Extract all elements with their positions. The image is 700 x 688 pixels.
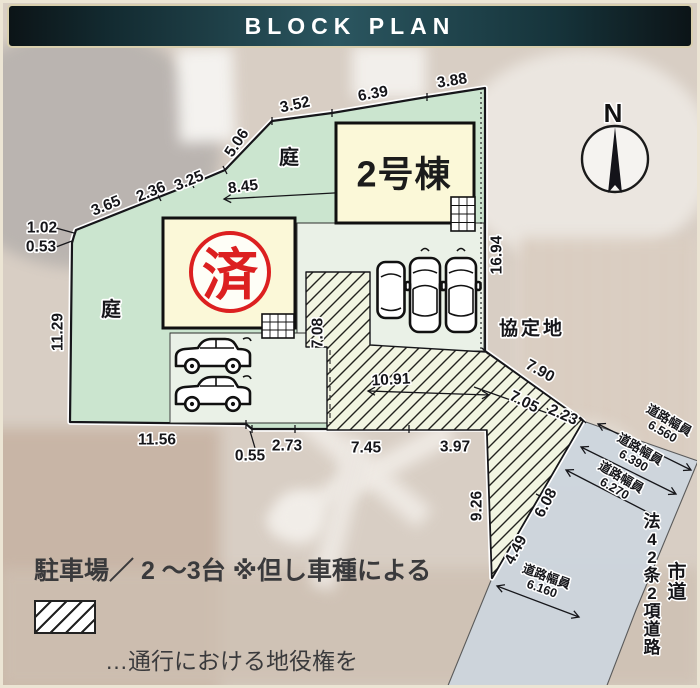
block-plan-flyer: BLOCK PLAN — [0, 0, 700, 688]
garden-label: 庭 — [101, 297, 121, 321]
easement-legend: …通行における地役権を 設定していただきます。 (別途設定登記費用がかかります) — [34, 596, 464, 688]
dimension-label: 2.73 — [272, 438, 303, 455]
compass-north-label: N — [604, 98, 623, 128]
dimension-label: 7.08 — [310, 318, 327, 349]
legend-line-1: …通行における地役権を — [105, 648, 464, 674]
page-title: BLOCK PLAN — [245, 13, 456, 40]
dimension-label: 3.52 — [278, 94, 311, 117]
agreement-land-label: 協定地 — [499, 317, 565, 340]
dimension-label: 7.45 — [351, 440, 382, 457]
notes-block: 駐車場／ 2 ～3台 ※但し車種による …通行における地役権を 設定していただき… — [34, 551, 464, 688]
dimension-label: 10.91 — [371, 370, 411, 389]
garden-label: 庭 — [279, 145, 299, 169]
dimension-label: 3.97 — [440, 439, 470, 456]
building-2-porch — [451, 197, 475, 231]
dimension-label: 0.55 — [235, 448, 266, 465]
building-1-porch — [262, 314, 294, 338]
parking-note: 駐車場／ 2 ～3台 ※但し車種による — [34, 551, 464, 587]
compass: N — [582, 98, 648, 193]
dimension-label: 3.88 — [436, 70, 469, 92]
dimension-label: 1.02 — [27, 220, 57, 237]
car-top-view — [442, 249, 481, 333]
dimension-label: 11.29 — [50, 313, 67, 351]
easement-legend-text: …通行における地役権を 設定していただきます。 (別途設定登記費用がかかります) — [105, 596, 464, 688]
title-banner: BLOCK PLAN — [7, 4, 693, 48]
car-top-view — [406, 249, 445, 333]
sold-stamp-text: 済 — [202, 244, 259, 307]
building-2-label: 2号棟 — [356, 154, 451, 195]
dimension-label: 0.53 — [26, 239, 57, 256]
dimension-label: 9.26 — [469, 491, 486, 522]
dimension-label: 16.94 — [489, 235, 506, 274]
sold-stamp: 済 — [191, 233, 269, 311]
dimension-label: 11.56 — [138, 432, 176, 449]
hatch-legend-swatch — [34, 600, 96, 634]
road-name-label: 市道 — [667, 560, 686, 603]
car-top-view — [378, 262, 405, 318]
